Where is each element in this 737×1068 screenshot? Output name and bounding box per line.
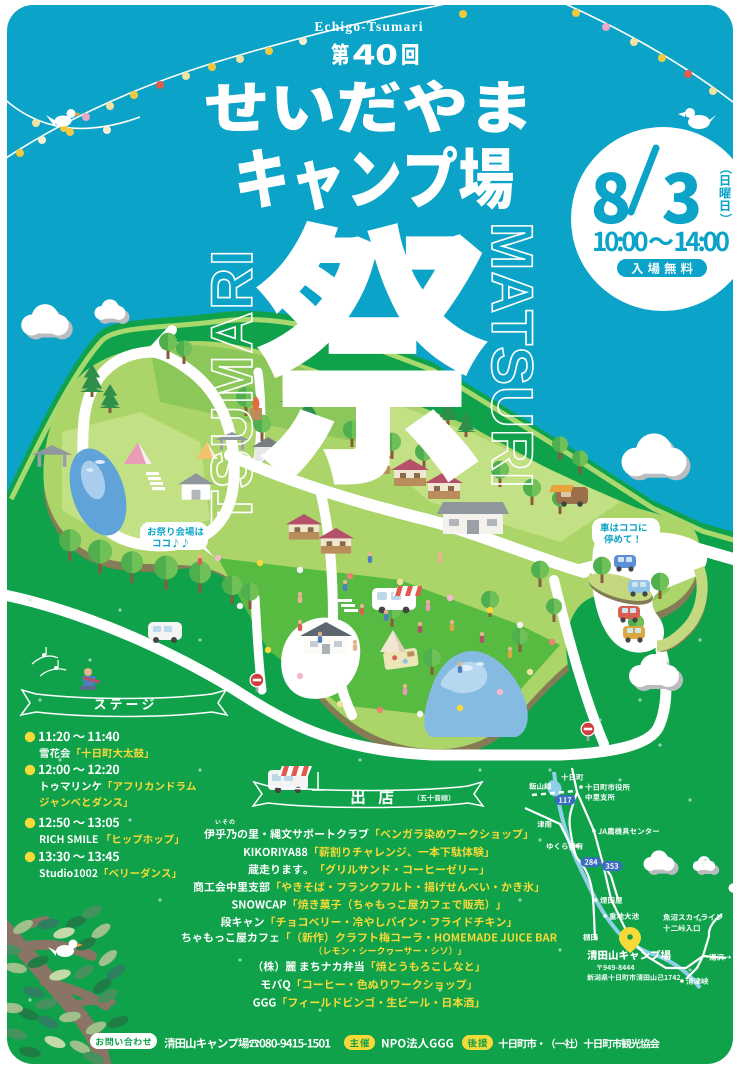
svg-text:Echigo-Tsumari: Echigo-Tsumari — [314, 19, 423, 34]
svg-text:TSUMARI: TSUMARI — [200, 248, 265, 526]
svg-text:MATSURI: MATSURI — [479, 222, 544, 489]
